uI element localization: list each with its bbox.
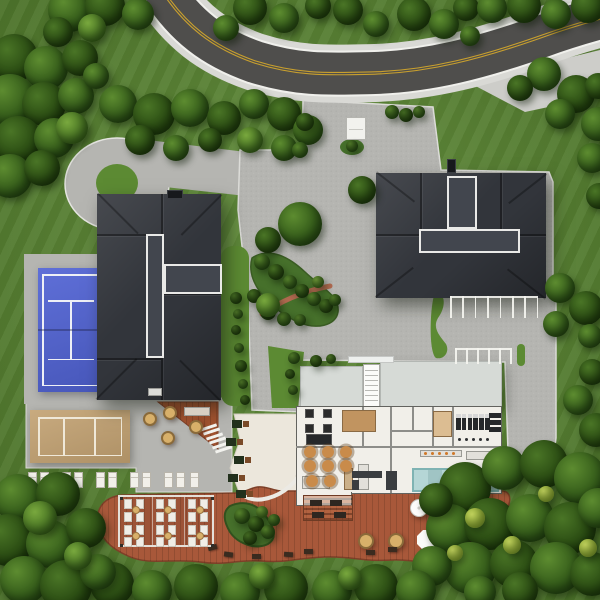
dumbbell xyxy=(486,438,489,441)
deck-bench xyxy=(388,547,397,552)
ottoman xyxy=(164,506,172,514)
pergola-post xyxy=(120,544,123,547)
umbrella-table xyxy=(189,420,203,434)
terrace-bench xyxy=(330,500,342,506)
treadmill xyxy=(473,414,478,430)
ottoman xyxy=(196,506,204,514)
pergola-post xyxy=(211,497,214,500)
parking-stall-line xyxy=(510,348,512,364)
pergola-beam xyxy=(152,497,153,545)
walkway-bench-group xyxy=(236,490,254,498)
parking-stall-line xyxy=(466,348,468,364)
bench-seat xyxy=(243,421,249,427)
parking-stall-line xyxy=(499,348,501,364)
parking-stall-line xyxy=(512,296,514,318)
umbrella-table xyxy=(143,412,157,426)
patio-umbrella xyxy=(428,499,446,517)
dining-table xyxy=(340,460,352,472)
ottoman xyxy=(132,506,140,514)
treadmill xyxy=(456,414,461,430)
dining-table xyxy=(340,446,352,458)
bench-seat xyxy=(245,457,251,463)
counter-item xyxy=(438,452,441,455)
sun-lounger xyxy=(74,472,83,488)
deck-bench xyxy=(304,549,313,554)
hex-umbrella xyxy=(417,530,437,550)
dining-table xyxy=(306,475,318,487)
parking-stall-line xyxy=(488,348,490,364)
dumbbell xyxy=(465,438,468,441)
umbrella-table xyxy=(161,431,175,445)
sun-lounger xyxy=(62,472,71,488)
bench-planter xyxy=(236,490,246,498)
parking-stall-line xyxy=(500,296,502,318)
lounge-pad xyxy=(188,525,196,535)
sun-lounger xyxy=(40,472,49,488)
ottoman xyxy=(196,532,204,540)
bench-seat xyxy=(237,439,243,445)
sun-lounger xyxy=(130,472,139,488)
umbrella-table xyxy=(163,406,177,420)
lounge-pad xyxy=(124,512,132,522)
lounge-pad xyxy=(124,499,132,509)
game-table xyxy=(323,424,332,433)
parking-row-line xyxy=(455,348,510,350)
lounge-pad xyxy=(156,499,164,509)
bench-planter xyxy=(232,420,242,428)
terrace-bench xyxy=(310,500,322,506)
dining-table xyxy=(322,446,334,458)
dining-table xyxy=(304,460,316,472)
walkway-bench-group xyxy=(228,474,246,482)
parking-stall-line xyxy=(450,296,452,318)
weight-rack xyxy=(489,427,501,432)
lounge-pad xyxy=(156,512,164,522)
sun-lounger xyxy=(108,472,117,488)
dumbbell xyxy=(479,438,482,441)
parking-stall-line xyxy=(475,296,477,318)
parking-stall-line xyxy=(524,296,526,318)
walkway-bench-group xyxy=(232,420,250,428)
dining-table xyxy=(324,475,336,487)
deck-bench xyxy=(224,551,234,557)
walkway-bench-group xyxy=(226,438,244,446)
game-table xyxy=(323,409,332,418)
sun-lounger xyxy=(176,472,185,488)
sun-lounger xyxy=(96,472,105,488)
bench-seat xyxy=(247,491,253,497)
ottoman xyxy=(132,532,140,540)
ottoman xyxy=(164,532,172,540)
parking-stall-line xyxy=(455,348,457,364)
patio-umbrella xyxy=(445,499,463,517)
dumbbell xyxy=(472,438,475,441)
lounge-pad xyxy=(156,537,164,547)
dining-table xyxy=(304,446,316,458)
pergola-post xyxy=(211,544,214,547)
parking-stall-line xyxy=(487,296,489,318)
weight-rack xyxy=(489,413,501,418)
lounge-pad xyxy=(188,537,196,547)
round-patio-table xyxy=(358,533,374,549)
dumbbell xyxy=(458,438,461,441)
counter-item xyxy=(452,452,455,455)
deck-bench xyxy=(284,552,293,558)
lounge-pad xyxy=(124,525,132,535)
walkway-bench-group xyxy=(234,456,252,464)
sun-lounger xyxy=(190,472,199,488)
lounge-pad xyxy=(188,499,196,509)
bench-planter xyxy=(226,438,236,446)
site-plan-render xyxy=(0,0,600,600)
deck-bench xyxy=(366,550,375,555)
patio-umbrella xyxy=(462,499,480,517)
sun-lounger xyxy=(142,472,151,488)
deck-bench xyxy=(483,526,493,535)
counter-item xyxy=(424,452,427,455)
game-table xyxy=(305,409,314,418)
sun-lounger xyxy=(164,472,173,488)
patio-umbrella xyxy=(410,499,428,517)
lounge-pad xyxy=(156,525,164,535)
dining-table xyxy=(322,460,334,472)
lounge-pad xyxy=(188,512,196,522)
parking-stall-line xyxy=(537,296,539,318)
pergola-beam xyxy=(184,497,185,545)
pergola-post xyxy=(120,497,123,500)
deck-bench xyxy=(499,518,509,527)
bench-planter xyxy=(228,474,238,482)
bench-seat xyxy=(239,475,245,481)
deck-bench xyxy=(463,537,473,545)
terrace-bench xyxy=(312,512,324,518)
parking-stall-line xyxy=(462,296,464,318)
treadmill xyxy=(468,414,473,430)
counter-item xyxy=(431,452,434,455)
treadmill xyxy=(462,414,467,430)
treadmill xyxy=(479,414,484,430)
weight-rack xyxy=(489,420,501,425)
sun-lounger xyxy=(28,472,37,488)
bench-planter xyxy=(234,456,244,464)
deck-bench xyxy=(440,550,449,555)
terrace-bench xyxy=(334,512,346,518)
lounge-pad xyxy=(124,537,132,547)
parking-stall-line xyxy=(477,348,479,364)
counter-item xyxy=(445,452,448,455)
game-table xyxy=(305,424,314,433)
deck-bench xyxy=(252,554,261,559)
